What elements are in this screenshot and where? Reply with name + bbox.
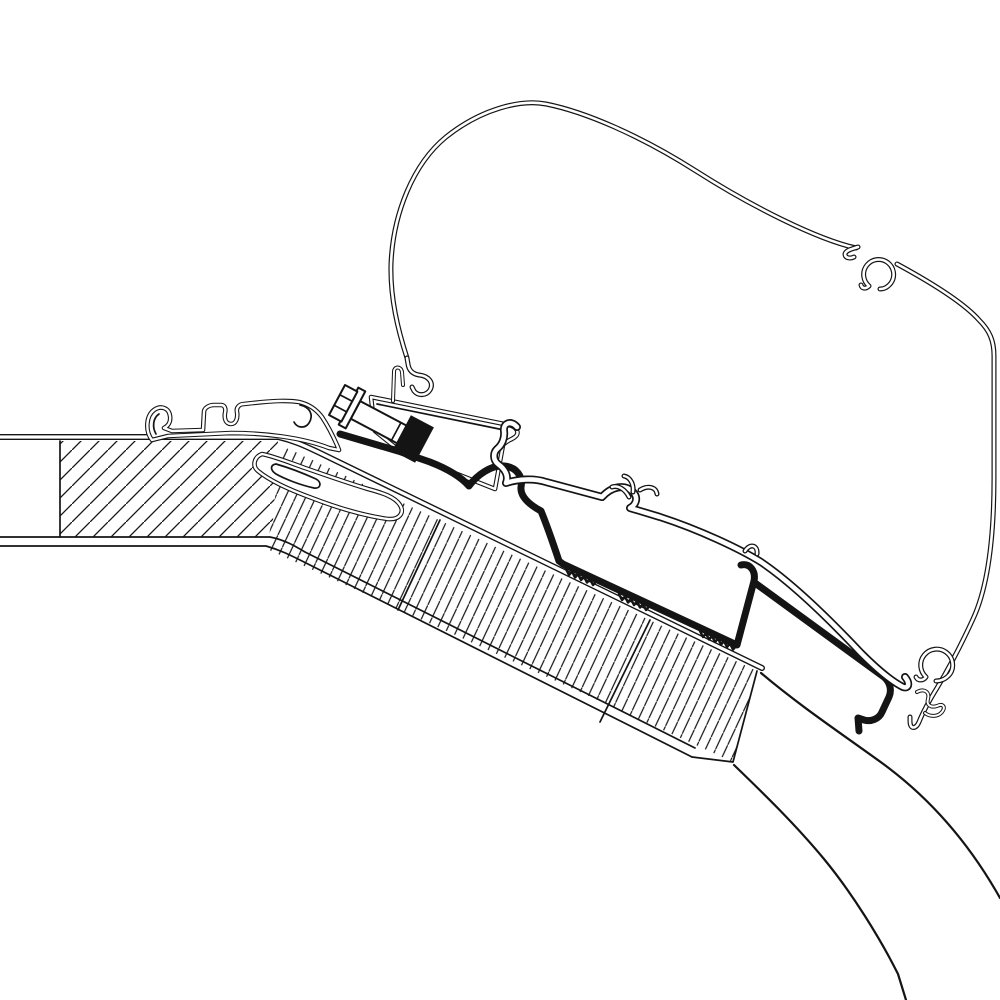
awning-adapter-cross-section-diagram — [0, 0, 1000, 1000]
awning-case-upper-c-hook — [861, 260, 894, 289]
roof-panel-hatch — [60, 441, 278, 537]
awning-case-outline — [391, 103, 856, 358]
mount-bracket-body — [371, 397, 517, 489]
awning-case-lower-c-loop — [916, 649, 953, 681]
awning-case-right-outline — [897, 264, 994, 728]
technical-drawing-page — [0, 0, 1000, 1000]
vehicle-wall-curve-lower — [734, 765, 906, 1000]
vehicle-wall-curve-upper — [761, 673, 1000, 898]
lower-rail-antler-3 — [640, 487, 657, 494]
awning-case-left-hook — [407, 358, 431, 395]
mount-bracket-tab — [393, 368, 403, 402]
awning-case-upper-tab — [845, 247, 858, 258]
